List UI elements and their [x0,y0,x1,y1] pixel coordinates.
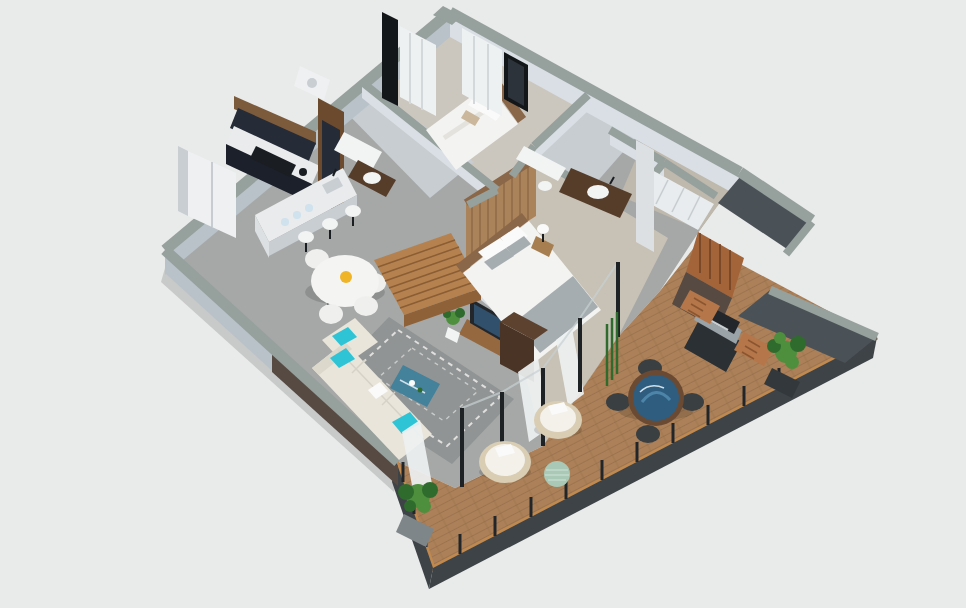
screenshot-canvas: 3D Floor Plan [0,0,966,608]
deck-plant [774,332,786,344]
deck-chair [636,425,660,443]
table-lamp [537,224,549,234]
deck-plant [398,484,414,500]
toilet [538,181,552,191]
mug [305,204,313,212]
refrigerator-side [178,146,188,216]
table-decor-plant [418,388,423,393]
houseplant [455,308,465,318]
kettle [299,168,307,176]
deck-plant [417,499,431,513]
table-decor [409,380,415,386]
deck-table-glass [633,375,679,421]
deck-plant [790,336,806,352]
laundry-door [307,78,317,88]
table-centerpiece [340,271,352,283]
mug [293,211,301,219]
green-pouf [544,461,570,487]
vessel-sink [363,172,381,184]
deck-chair [606,393,630,411]
deck-plant [785,355,799,369]
mug [281,218,289,226]
dining-chair [319,304,343,324]
deck-plant [404,500,416,512]
floor-plan-render: 3D Floor Plan [0,0,966,608]
deck-plant [422,482,438,498]
vessel-sink [587,185,609,199]
mirror-door [636,140,654,252]
dining-chair [354,296,378,316]
window-frame [382,12,398,106]
